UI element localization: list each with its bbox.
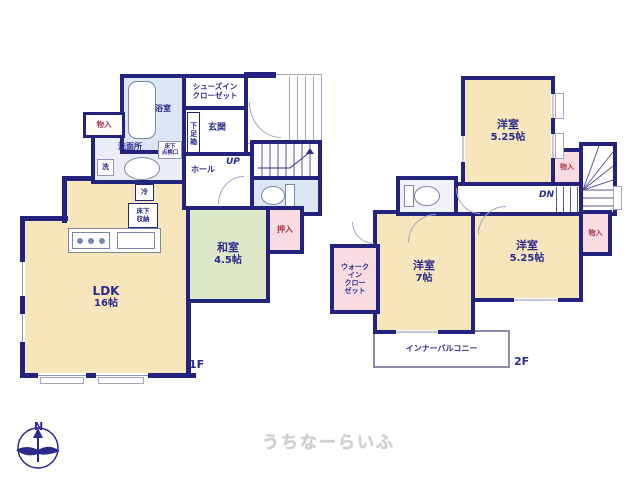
closet-oshiire: 押入 (266, 206, 304, 254)
window-sill (613, 186, 622, 210)
underfloor-hatch: 床下 点検口 (158, 141, 182, 159)
stairs-1f-treads (254, 144, 318, 176)
window-sill (555, 93, 564, 119)
stairs-up-label: UP (226, 157, 240, 168)
floor1-label: 1F (189, 359, 204, 372)
bedroom-left-size: 7帖 (416, 273, 433, 285)
oshiire-label: 押入 (277, 225, 293, 234)
room-bedroom-top: 洋室 5.25帖 (461, 76, 555, 186)
bedroom-left-name: 洋室 (413, 260, 435, 273)
bedroom-top-name: 洋室 (497, 119, 519, 132)
shoe-cabinet-label: 下足箱 (189, 122, 197, 146)
watermark-logo: うちなーらいふ (262, 428, 395, 453)
toilet-bowl-2f (414, 186, 440, 206)
room-washitsu: 和室 4.5帖 (186, 206, 270, 303)
hatch-label-line2: 点検口 (162, 150, 179, 156)
fridge-label: 冷 (141, 188, 148, 196)
window-sill (98, 377, 144, 384)
wash-basin (124, 157, 160, 180)
window-sill (40, 377, 84, 384)
stove-burner (99, 238, 105, 244)
window-sill (555, 133, 564, 159)
window (396, 330, 438, 334)
stove (72, 232, 110, 249)
window (514, 298, 558, 302)
shoe-cabinet: 下足箱 (187, 112, 200, 156)
shoes-closet-label-line2: クローゼット (193, 92, 238, 101)
kitchen-counter (68, 228, 161, 253)
toilet-tank-1f (285, 184, 295, 207)
stairs-1f (250, 140, 322, 180)
bedroom-right-name: 洋室 (516, 240, 538, 253)
window (20, 314, 25, 342)
underfloor-storage-line2: 収納 (137, 216, 150, 224)
washitsu-name: 和室 (217, 242, 239, 255)
washing-machine: 洗 (97, 159, 114, 176)
room-shoes-in-closet: シューズイン クローゼット (182, 74, 248, 110)
window (461, 136, 465, 162)
floor-plan-canvas: 浴室 シューズイン クローゼット 玄関 下足箱 物入 洗面所 洗 床下 点検口 … (0, 0, 640, 479)
wall (20, 216, 68, 221)
monoire-1f-label: 物入 (97, 121, 112, 130)
stove-burner (88, 238, 94, 244)
stove-burner (77, 238, 83, 244)
washitsu-size: 4.5帖 (214, 255, 242, 267)
wic-label-line3: クロー (345, 279, 366, 287)
stairs-2f (579, 142, 617, 216)
window (20, 262, 25, 296)
stairs-down-label: DN (539, 190, 554, 201)
wall (244, 72, 276, 78)
inner-balcony: インナーバルコニー (373, 330, 510, 368)
porch-steps (289, 76, 319, 142)
closet-monoire-2f-right: 物入 (579, 210, 612, 256)
walk-in-closet: ウォーク イン クロー ゼット (330, 244, 380, 314)
kitchen-sink (117, 232, 155, 249)
wic-label-line1: ウォーク (341, 263, 369, 271)
bathtub (128, 81, 156, 139)
bathroom-label: 浴室 (155, 104, 171, 113)
stairs-2f-lower-treads (556, 187, 581, 212)
fridge: 冷 (135, 184, 154, 201)
compass: N (10, 416, 66, 472)
toilet-bowl-1f (261, 186, 285, 205)
wic-label-line4: ゼット (345, 287, 366, 295)
monoire-2f-top-label: 物入 (560, 163, 574, 171)
stairs-2f-winder (583, 146, 613, 212)
floor2-label: 2F (514, 356, 529, 369)
washer-label: 洗 (102, 163, 109, 171)
monoire-2f-right-label: 物入 (589, 229, 603, 237)
wall (20, 216, 25, 378)
stairs-arrow (306, 148, 314, 154)
inner-balcony-label: インナーバルコニー (406, 344, 478, 353)
closet-monoire-1f: 物入 (83, 112, 125, 138)
underfloor-storage: 床下 収納 (128, 203, 158, 228)
wic-label-line2: イン (348, 271, 362, 279)
genkan-label: 玄関 (208, 123, 226, 134)
toilet-tank-2f (404, 185, 414, 207)
compass-north-label: N (34, 420, 43, 433)
washroom-label: 洗面所 (118, 142, 142, 151)
bedroom-right-size: 5.25帖 (510, 253, 545, 265)
bedroom-top-size: 5.25帖 (491, 132, 526, 144)
wic-door-arc (352, 222, 374, 244)
hall-label: ホール (191, 165, 215, 174)
